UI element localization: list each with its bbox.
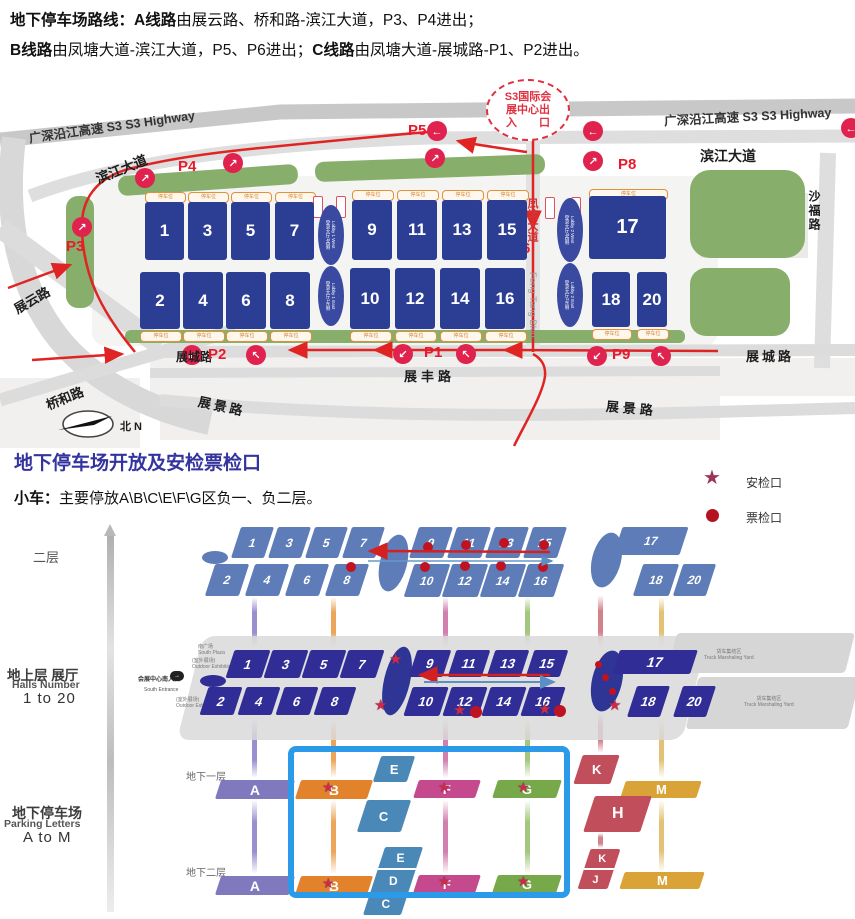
legend-security-label: 安检口 bbox=[746, 474, 782, 491]
marker-nw-icon: ↖ bbox=[651, 346, 671, 366]
lobby-2-west-label-en: Lobby 2 West bbox=[570, 216, 575, 243]
lobby-1-east: 登录大厅1东侧Lobby 1 East bbox=[318, 266, 344, 326]
road-label-shafu: 沙福路 bbox=[806, 190, 823, 232]
hall-7: 7 bbox=[275, 202, 314, 260]
marker-west-icon: ← bbox=[427, 121, 447, 141]
p3-label: P3 bbox=[66, 238, 84, 255]
marker-west-icon: ← bbox=[583, 121, 603, 141]
lobby-2-east-label-en: Lobby 2 East bbox=[570, 282, 575, 308]
route-b-text: 由凤塘大道-滨江大道，P5、P6进出； bbox=[52, 42, 312, 59]
s3-gate-line3: 入 口 bbox=[506, 117, 550, 130]
route-title: 地下停车场路线： bbox=[10, 12, 134, 29]
road-label-fengtang-en: Feng Tang Blvd bbox=[527, 272, 538, 338]
svg-text:↗: ↗ bbox=[140, 173, 149, 185]
hall-5: 5 bbox=[231, 202, 270, 260]
svg-text:↗: ↗ bbox=[77, 222, 86, 234]
parking-strip: 停车位 bbox=[226, 331, 268, 342]
svg-text:↖: ↖ bbox=[656, 351, 665, 363]
parking-m-label: M bbox=[657, 873, 668, 888]
hall-4: 4 bbox=[183, 272, 223, 329]
lobby-1-west-label-en: Lobby 1 West bbox=[331, 221, 336, 248]
hall-2: 2 bbox=[140, 272, 180, 329]
section-title: 地下停车场开放及安检票检口 bbox=[14, 448, 261, 475]
parking-strip: 停车位 bbox=[183, 331, 225, 342]
parking-strip: 停车位 bbox=[140, 331, 182, 342]
svg-text:↙: ↙ bbox=[398, 349, 407, 361]
s3-gate-callout: S3国际会 展中心出 入 口 bbox=[486, 79, 570, 141]
hall-14: 14 bbox=[440, 268, 480, 329]
parking-j-label: J bbox=[593, 874, 599, 886]
svg-text:↖: ↖ bbox=[461, 349, 470, 361]
hall-20: 20 bbox=[637, 272, 667, 327]
marker-ne-icon: ↗ bbox=[583, 151, 603, 171]
hall-18: 18 bbox=[592, 272, 630, 327]
lobby-1-east-label-en: Lobby 1 East bbox=[331, 283, 336, 309]
highlight-box bbox=[288, 746, 570, 898]
route-b-label: B线路 bbox=[10, 42, 52, 59]
svg-text:↗: ↗ bbox=[430, 153, 439, 165]
parking-area-h: H bbox=[583, 796, 652, 832]
parking-strip: 停车位 bbox=[485, 331, 527, 342]
parking-a-label: A bbox=[250, 782, 260, 798]
parking-k-label: K bbox=[598, 853, 606, 865]
parking-strip: 停车位 bbox=[440, 331, 482, 342]
lobby-2-west: 登录大厅2西侧Lobby 2 West bbox=[557, 198, 583, 262]
svg-text:↖: ↖ bbox=[251, 350, 260, 362]
marker-sw-icon: ↙ bbox=[587, 346, 607, 366]
hall-8: 8 bbox=[270, 272, 310, 329]
parking-h-label: H bbox=[612, 805, 624, 823]
floor2-flow-arrow-red bbox=[370, 551, 550, 552]
svg-text:↗: ↗ bbox=[228, 158, 237, 170]
parking-strip: 停车位 bbox=[592, 329, 632, 340]
hall-15: 15 bbox=[487, 200, 527, 260]
s3-gate-line2: 展中心出 bbox=[506, 104, 550, 117]
infographic-canvas: 地下停车场路线：A线路由展云路、桥和路-滨江大道，P3、P4进出； B线路由凤塘… bbox=[0, 0, 855, 919]
p4-label: P4 bbox=[178, 158, 196, 175]
parking-m-label: M bbox=[656, 782, 667, 797]
route-a-text: 由展云路、桥和路-滨江大道，P3、P4进出； bbox=[176, 12, 483, 29]
parking-strip: 停车位 bbox=[270, 331, 312, 342]
parking-area-a-b1: A bbox=[215, 780, 295, 799]
parking-strip: 停车位 bbox=[395, 331, 437, 342]
lobby-2-east: 登录大厅2东侧Lobby 2 East bbox=[557, 263, 583, 327]
parking-strip: 停车位 bbox=[350, 331, 392, 342]
route-line-2: B线路由凤塘大道-滨江大道，P5、P6进出；C线路由凤塘大道-展城路-P1、P2… bbox=[10, 36, 850, 66]
route-a-label: A线路 bbox=[134, 12, 176, 29]
route-description: 地下停车场路线：A线路由展云路、桥和路-滨江大道，P3、P4进出； B线路由凤塘… bbox=[10, 6, 850, 66]
p5-label: P5 bbox=[408, 122, 426, 139]
road-label-zhanfeng: 展丰路 bbox=[404, 366, 455, 385]
parking-k-label: K bbox=[592, 762, 601, 777]
s3-gate-line1: S3国际会 bbox=[505, 91, 551, 104]
p2-label: P2 bbox=[208, 346, 226, 363]
hall-6: 6 bbox=[226, 272, 266, 329]
p9-label: P9 bbox=[612, 346, 630, 363]
hall-17: 17 bbox=[589, 196, 666, 259]
marker-ne-icon: ↗ bbox=[425, 148, 445, 168]
marker-nw-icon: ↖ bbox=[456, 344, 476, 364]
parking-area-a-b2: A bbox=[215, 876, 295, 895]
parking-a-label: A bbox=[250, 878, 260, 894]
parking-area-k-b2: K bbox=[584, 849, 620, 868]
legend-security-star-icon: ★ bbox=[703, 468, 721, 488]
parking-area-m-b2: M bbox=[619, 872, 705, 889]
route-c-text: 由凤塘大道-展城路-P1、P2进出。 bbox=[355, 42, 589, 59]
compass-label: 北 N bbox=[120, 418, 142, 434]
parking-strip-small bbox=[545, 197, 555, 219]
hall-13: 13 bbox=[442, 200, 482, 260]
shafu-road bbox=[822, 153, 828, 368]
route-line-1: 地下停车场路线：A线路由展云路、桥和路-滨江大道，P3、P4进出； bbox=[10, 6, 850, 36]
parking-strip: 停车位 bbox=[637, 329, 669, 340]
svg-text:↗: ↗ bbox=[588, 156, 597, 168]
road-label-binjiang-right: 滨江大道 bbox=[700, 146, 756, 166]
marker-nw-icon: ↖ bbox=[246, 345, 266, 365]
marker-sw-icon: ↙ bbox=[393, 344, 413, 364]
hall-1: 1 bbox=[145, 202, 184, 260]
hall-12: 12 bbox=[395, 268, 435, 329]
p1-label: P1 bbox=[424, 344, 442, 361]
p8-label: P8 bbox=[618, 156, 636, 173]
lobby-1-west: 登录大厅1西侧Lobby 1 West bbox=[318, 205, 344, 265]
road-label-zhancheng-right: 展城路 bbox=[746, 346, 794, 365]
marker-ne-icon: ↗ bbox=[223, 153, 243, 173]
svg-text:←: ← bbox=[588, 126, 599, 138]
marker-ne-icon: ↗ bbox=[72, 217, 92, 237]
hall-16: 16 bbox=[485, 268, 525, 329]
hall-3: 3 bbox=[188, 202, 227, 260]
svg-text:←: ← bbox=[432, 126, 443, 138]
hall-11: 11 bbox=[397, 200, 437, 260]
hall-10: 10 bbox=[350, 268, 390, 329]
hall-9: 9 bbox=[352, 200, 392, 260]
svg-text:↙: ↙ bbox=[592, 351, 601, 363]
route-c-label: C线路 bbox=[312, 42, 354, 59]
road-label-zhancheng-left: 展城路 bbox=[176, 348, 212, 365]
parking-c-label: C bbox=[381, 897, 390, 911]
svg-text:←: ← bbox=[846, 123, 855, 135]
site-map-roads: ↗ ↗ ↗ ← ↗ ← ↗ ← ↙ ↖ ↙ ↖ ↙ ↖ bbox=[0, 78, 855, 448]
